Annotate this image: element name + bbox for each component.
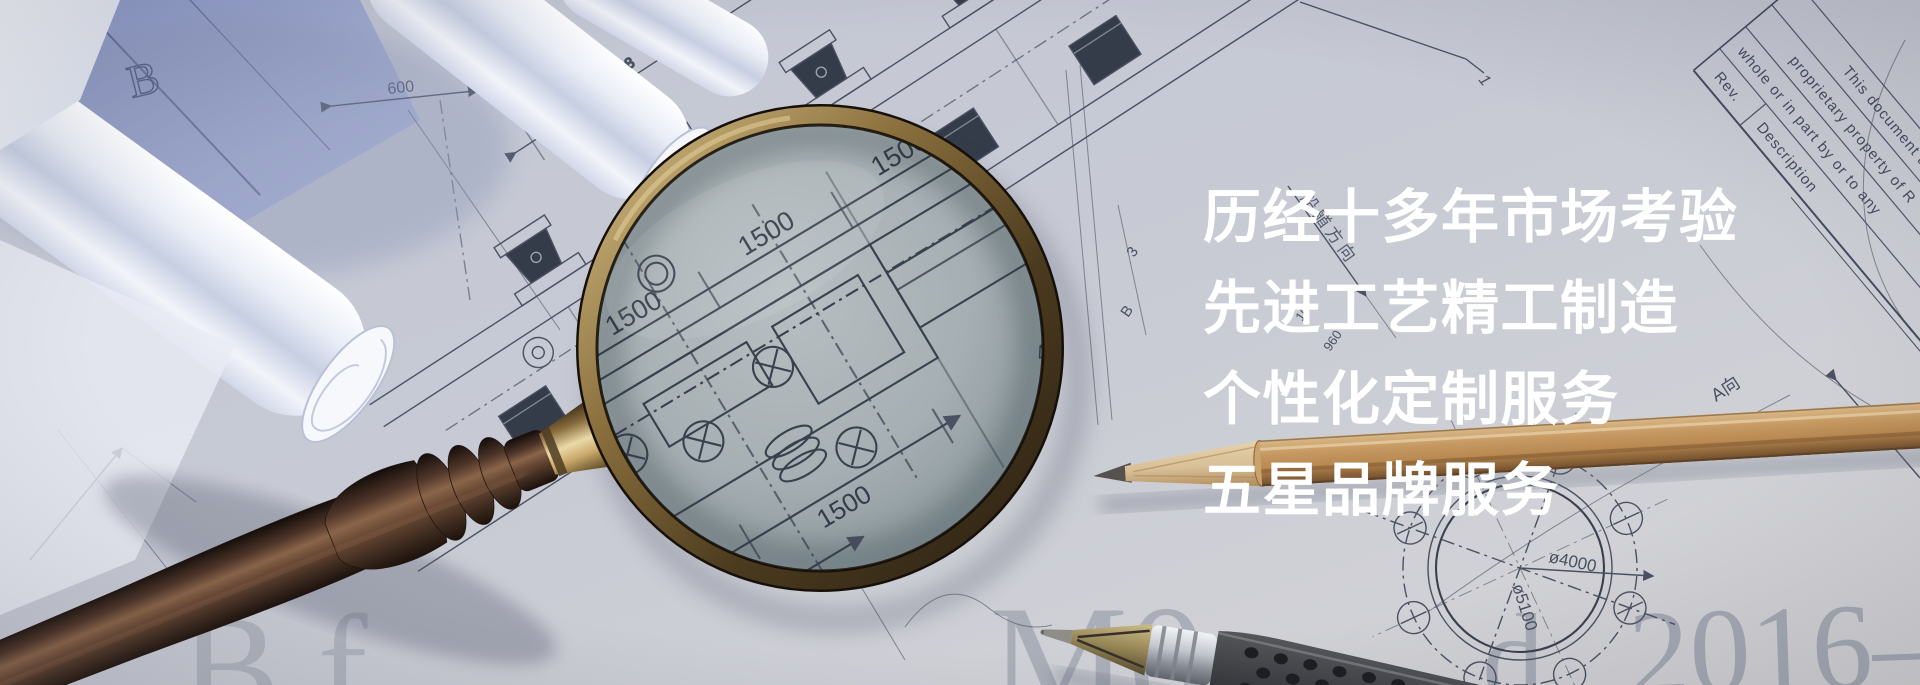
hero-headline: 历经十多年市场考验 先进工艺精工制造 个性化定制服务 五星品牌服务 [1203, 172, 1739, 536]
hero-line-4: 五星品牌服务 [1203, 445, 1739, 536]
hero-line-3: 个性化定制服务 [1203, 354, 1739, 445]
hero-line-1: 历经十多年市场考验 [1203, 172, 1739, 263]
hero-banner: 8 3900 3 B 1 船艏方向 10 960 M0 d 2016— B f [0, 0, 1920, 685]
hero-line-2: 先进工艺精工制造 [1203, 263, 1739, 354]
